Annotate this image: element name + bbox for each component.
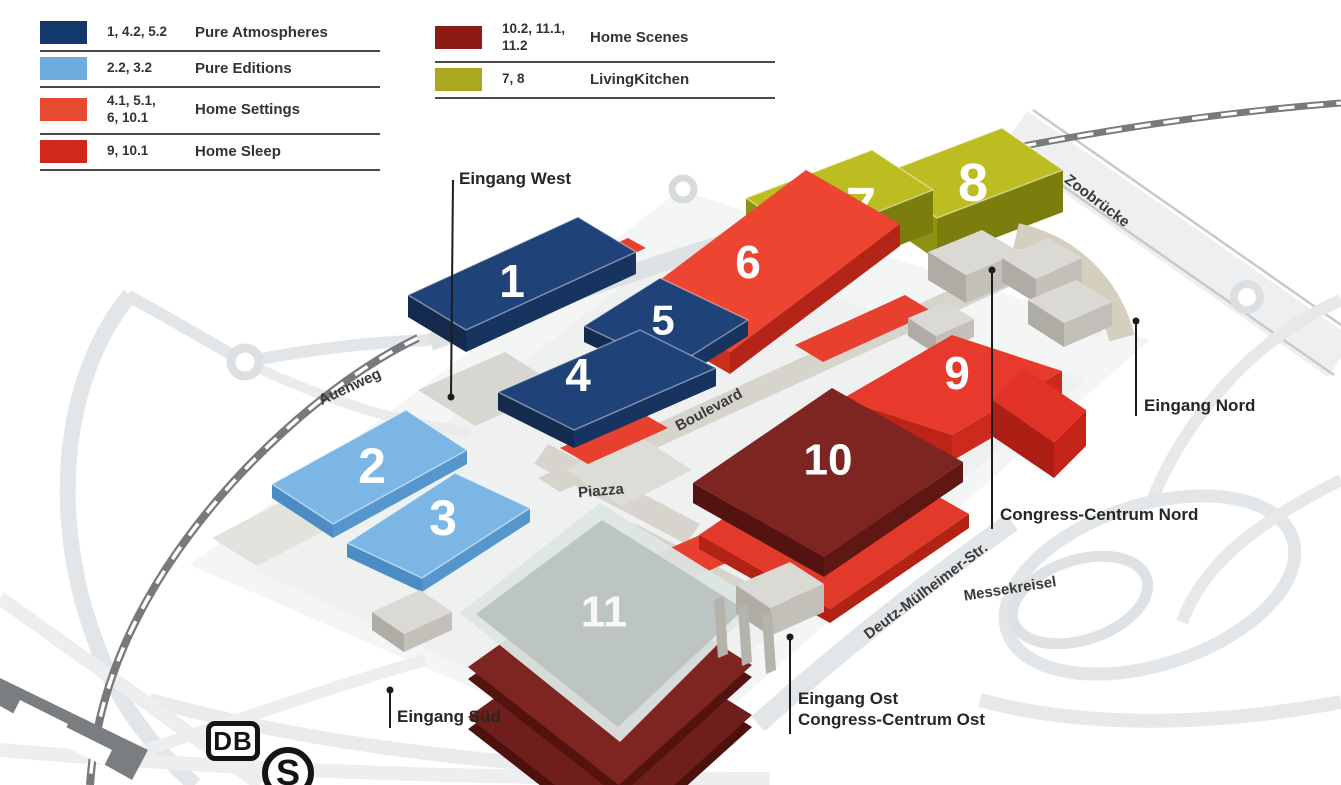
legend-label: Home Scenes xyxy=(590,29,688,46)
legend-label: Home Settings xyxy=(195,101,300,118)
label-eingang-west: Eingang West xyxy=(459,169,571,189)
hall-9-number: 9 xyxy=(944,347,970,399)
legend-categories-right: 10.2, 11.1, 11.2 Home Scenes 7, 8 Living… xyxy=(435,16,775,99)
legend-item-home-scenes: 10.2, 11.1, 11.2 Home Scenes xyxy=(435,16,775,63)
hall-10-number: 10 xyxy=(804,436,853,485)
legend-label: Pure Atmospheres xyxy=(195,24,328,41)
legend-halls: 10.2, 11.1, 11.2 xyxy=(502,21,590,55)
legend-item-pure-editions: 2.2, 3.2 Pure Editions xyxy=(40,52,380,88)
label-congress-centrum-ost: Congress-Centrum Ost xyxy=(798,709,985,730)
legend-swatch-home-settings xyxy=(40,98,87,121)
legend-label: Home Sleep xyxy=(195,143,281,160)
label-eingang-nord: Eingang Nord xyxy=(1144,396,1255,416)
legend-swatch-pure-editions xyxy=(40,57,87,80)
fairground-map-page: 8 7 6 1 5 xyxy=(0,0,1341,785)
legend-swatch-home-sleep xyxy=(40,140,87,163)
hall-6-number: 6 xyxy=(735,236,761,288)
db-bahn-icon: DB xyxy=(206,721,260,761)
legend-swatch-home-scenes xyxy=(435,26,482,49)
label-congress-centrum-nord: Congress-Centrum Nord xyxy=(1000,505,1198,525)
hall-11-number: 11 xyxy=(581,588,628,637)
legend-halls: 7, 8 xyxy=(502,71,590,88)
legend-halls: 4.1, 5.1, 6, 10.1 xyxy=(107,93,195,127)
legend-item-livingkitchen: 7, 8 LivingKitchen xyxy=(435,63,775,99)
legend-halls: 9, 10.1 xyxy=(107,143,195,160)
legend-item-home-sleep: 9, 10.1 Home Sleep xyxy=(40,135,380,171)
legend-swatch-livingkitchen xyxy=(435,68,482,91)
legend-swatch-pure-atmospheres xyxy=(40,21,87,44)
hall-5-number: 5 xyxy=(651,297,674,344)
legend-label: Pure Editions xyxy=(195,60,292,77)
hall-8-number: 8 xyxy=(958,153,988,213)
hall-2-number: 2 xyxy=(358,438,386,494)
hall-3-number: 3 xyxy=(429,490,457,546)
legend-item-pure-atmospheres: 1, 4.2, 5.2 Pure Atmospheres xyxy=(40,16,380,52)
legend-item-home-settings: 4.1, 5.1, 6, 10.1 Home Settings xyxy=(40,88,380,135)
legend-halls: 1, 4.2, 5.2 xyxy=(107,24,195,41)
label-eingang-ost: Eingang Ost Congress-Centrum Ost xyxy=(798,688,985,730)
legend-label: LivingKitchen xyxy=(590,71,689,88)
legend-halls: 2.2, 3.2 xyxy=(107,60,195,77)
hall-4-number: 4 xyxy=(565,349,591,401)
legend-categories-left: 1, 4.2, 5.2 Pure Atmospheres 2.2, 3.2 Pu… xyxy=(40,16,380,171)
label-eingang-sued: Eingang Süd xyxy=(397,707,501,727)
label-eingang-ost-line1: Eingang Ost xyxy=(798,688,985,709)
hall-1-number: 1 xyxy=(499,255,525,307)
